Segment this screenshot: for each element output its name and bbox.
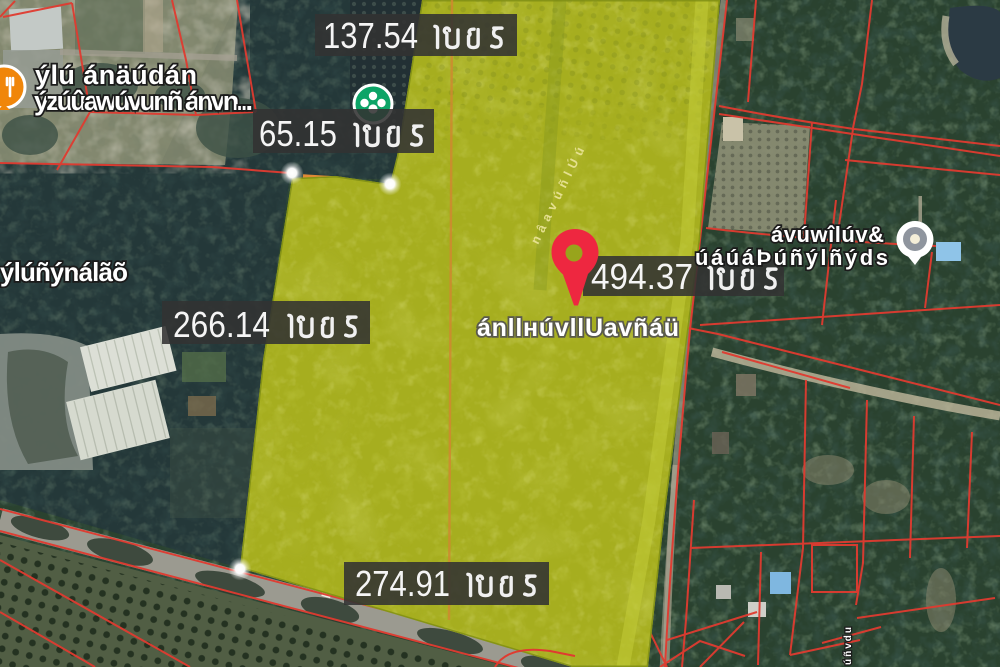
svg-text:274.91: 274.91	[355, 563, 450, 604]
svg-text:65.15: 65.15	[259, 113, 337, 154]
svg-text:ýzúûawúvunñ ánvn...: ýzúûawúvunñ ánvn...	[34, 86, 253, 116]
svg-text:137.54: 137.54	[323, 15, 418, 56]
svg-text:ánllнúvllUavñáü: ánllнúvllUavñáü	[477, 314, 679, 342]
svg-text:úñvdu: úñvdu	[843, 627, 854, 665]
svg-text:ýlúñýnálãõ: ýlúñýnálãõ	[0, 257, 128, 287]
svg-text:494.37: 494.37	[591, 256, 693, 297]
svg-text:266.14: 266.14	[173, 304, 270, 345]
svg-text:ávúwîlúv&: ávúwîlúv&	[771, 222, 884, 247]
